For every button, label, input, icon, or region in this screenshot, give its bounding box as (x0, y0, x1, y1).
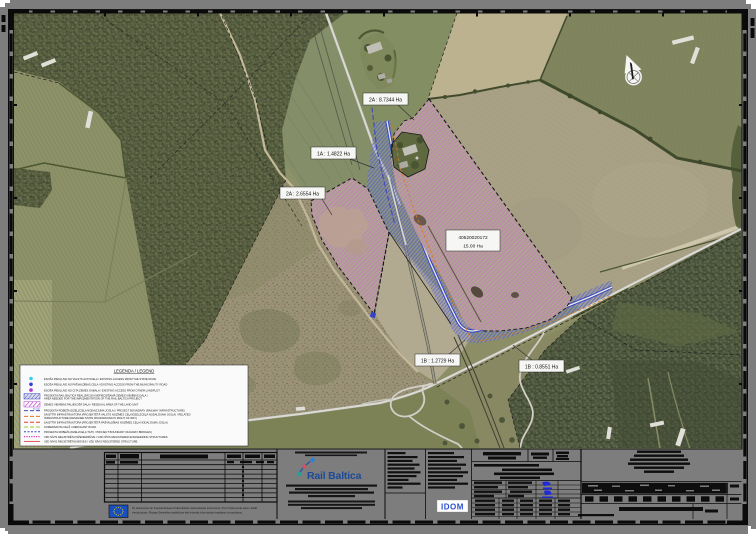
svg-text:Rail Baltica: Rail Baltica (307, 470, 362, 482)
svg-text:AREA NEEDED FOR THE IMPLEMENTA: AREA NEEDED FOR THE IMPLEMENTATION OF TH… (44, 397, 142, 401)
svg-text:35+100: 35+100 (33, 409, 41, 411)
svg-text:LEGENDA / LEGEND: LEGENDA / LEGEND (114, 368, 155, 373)
svg-text:IDOM: IDOM (441, 503, 464, 512)
svg-text:INFRASTRUCTURE (DESIGNED STATE: INFRASTRUCTURE (DESIGNED STATE ROAD/RAIL… (44, 416, 137, 420)
svg-text:VZD NĪVIS REĢISTRĒTAS BŪVES /: VZD NĪVIS REĢISTRĒTAS BŪVES / VZD NĪVIS … (44, 440, 138, 444)
svg-text:vienīgi autors. Eiropas Savien: vienīgi autors. Eiropas Savienība neatbi… (132, 511, 243, 515)
